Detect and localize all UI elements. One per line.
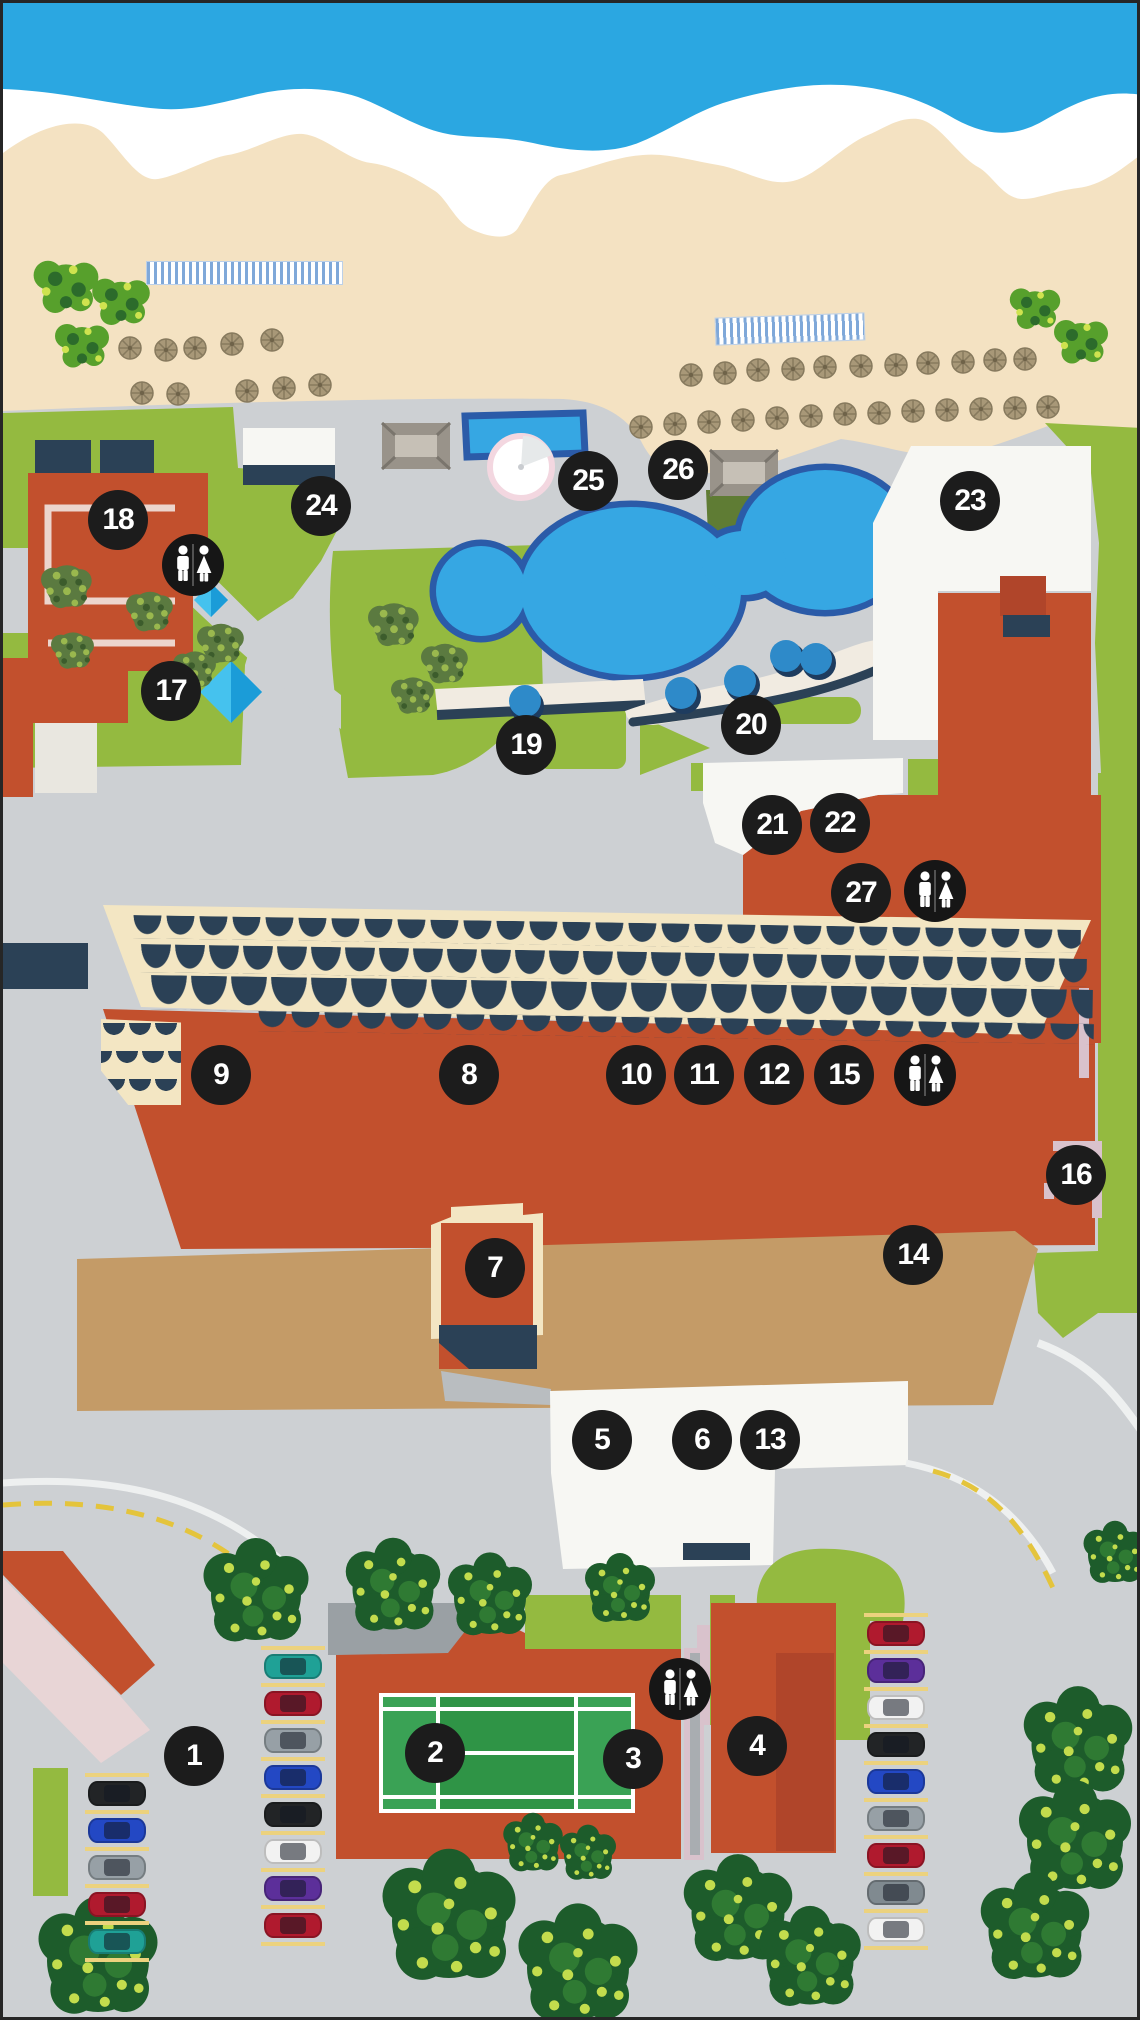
parked-car <box>88 1818 146 1843</box>
parking-column <box>85 1773 149 1962</box>
map-marker-10[interactable]: 10 <box>606 1045 666 1105</box>
parking-slot <box>864 1872 928 1909</box>
parking-slot <box>864 1909 928 1950</box>
map-marker-22[interactable]: 22 <box>810 793 870 853</box>
restroom-icon <box>162 534 224 596</box>
parked-car <box>264 1876 322 1901</box>
parked-car <box>264 1839 322 1864</box>
parked-car <box>867 1917 925 1942</box>
map-marker-17[interactable]: 17 <box>141 661 201 721</box>
parking-column <box>261 1646 325 1946</box>
parking-slot <box>85 1921 149 1962</box>
map-marker-21[interactable]: 21 <box>742 795 802 855</box>
map-marker-18[interactable]: 18 <box>88 490 148 550</box>
parked-car <box>88 1781 146 1806</box>
parked-car <box>264 1913 322 1938</box>
parked-car <box>264 1728 322 1753</box>
parking-slot <box>85 1847 149 1884</box>
parking-slot <box>864 1835 928 1872</box>
map-marker-2[interactable]: 2 <box>405 1723 465 1783</box>
parking-slot <box>261 1757 325 1794</box>
parked-car <box>867 1658 925 1683</box>
restroom-icon <box>904 860 966 922</box>
parking-column <box>864 1613 928 1950</box>
parking-slot <box>85 1884 149 1921</box>
parked-car <box>867 1806 925 1831</box>
parked-car <box>88 1892 146 1917</box>
map-marker-9[interactable]: 9 <box>191 1045 251 1105</box>
parked-car <box>867 1843 925 1868</box>
parked-car <box>264 1691 322 1716</box>
map-marker-11[interactable]: 11 <box>674 1045 734 1105</box>
parking-slot <box>261 1720 325 1757</box>
parking-slot <box>864 1761 928 1798</box>
map-marker-13[interactable]: 13 <box>740 1410 800 1470</box>
parking-slot <box>864 1798 928 1835</box>
map-marker-25[interactable]: 25 <box>558 451 618 511</box>
map-marker-20[interactable]: 20 <box>721 695 781 755</box>
map-marker-6[interactable]: 6 <box>672 1410 732 1470</box>
map-marker-12[interactable]: 12 <box>744 1045 804 1105</box>
parked-car <box>867 1880 925 1905</box>
resort-map: 1234567891011121314151617181920212223242… <box>0 0 1140 2020</box>
map-marker-27[interactable]: 27 <box>831 863 891 923</box>
parking-slot <box>864 1650 928 1687</box>
map-marker-1[interactable]: 1 <box>164 1726 224 1786</box>
map-marker-19[interactable]: 19 <box>496 715 556 775</box>
restroom-icon <box>649 1658 711 1720</box>
parked-car <box>867 1695 925 1720</box>
parked-car <box>88 1855 146 1880</box>
hot-tub <box>490 436 552 498</box>
map-marker-16[interactable]: 16 <box>1046 1145 1106 1205</box>
beach-lounger-row <box>146 261 343 285</box>
parked-car <box>264 1654 322 1679</box>
parked-car <box>867 1769 925 1794</box>
map-marker-3[interactable]: 3 <box>603 1729 663 1789</box>
parking-slot <box>864 1687 928 1724</box>
map-marker-15[interactable]: 15 <box>814 1045 874 1105</box>
parking-slot <box>261 1868 325 1905</box>
map-marker-8[interactable]: 8 <box>439 1045 499 1105</box>
restroom-icon <box>894 1044 956 1106</box>
parking-slot <box>261 1646 325 1683</box>
map-marker-14[interactable]: 14 <box>883 1225 943 1285</box>
parking-slot <box>85 1810 149 1847</box>
snack-bar-building <box>243 428 335 468</box>
parking-slot <box>85 1773 149 1810</box>
beach-lounger-row <box>715 312 866 345</box>
parking-slot <box>261 1683 325 1720</box>
map-marker-26[interactable]: 26 <box>648 440 708 500</box>
parking-slot <box>261 1905 325 1946</box>
map-marker-24[interactable]: 24 <box>291 476 351 536</box>
parking-slot <box>864 1613 928 1650</box>
map-marker-23[interactable]: 23 <box>940 471 1000 531</box>
map-marker-5[interactable]: 5 <box>572 1410 632 1470</box>
parked-car <box>264 1765 322 1790</box>
parking-slot <box>261 1794 325 1831</box>
parking-slot <box>864 1724 928 1761</box>
map-marker-7[interactable]: 7 <box>465 1238 525 1298</box>
pool-pavilion <box>382 423 450 469</box>
parked-car <box>88 1929 146 1954</box>
parking-slot <box>261 1831 325 1868</box>
parked-car <box>264 1802 322 1827</box>
parked-car <box>867 1732 925 1757</box>
map-marker-4[interactable]: 4 <box>727 1716 787 1776</box>
parked-car <box>867 1621 925 1646</box>
